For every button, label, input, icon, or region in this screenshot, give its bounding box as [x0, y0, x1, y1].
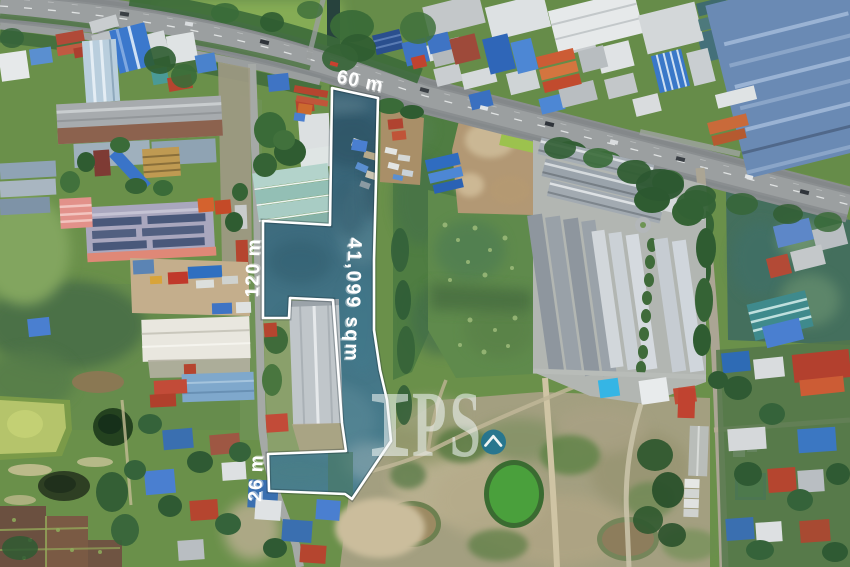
svg-text:26 m: 26 m: [245, 454, 268, 502]
svg-text:PS: PS: [412, 372, 484, 476]
svg-text:120 m: 120 m: [242, 238, 265, 298]
svg-text:41,099 sqm: 41,099 sqm: [340, 237, 365, 363]
